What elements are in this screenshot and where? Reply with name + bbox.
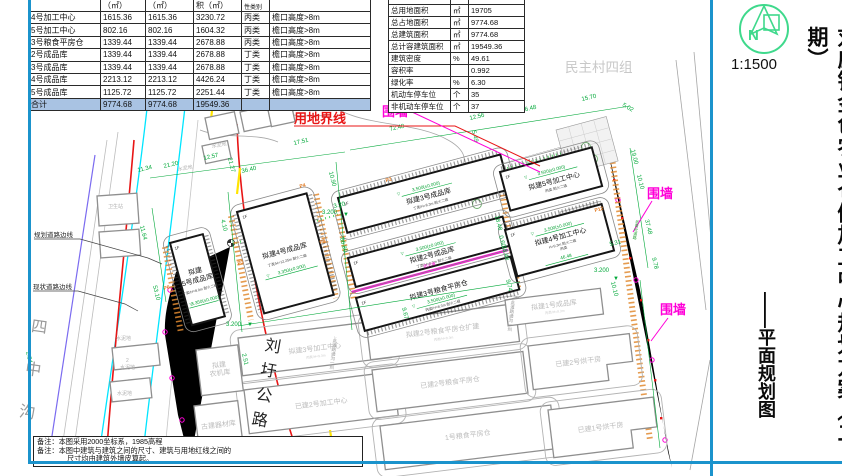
table-header-cell: （㎡）	[101, 0, 146, 12]
table-cell: 檐口高度>8m	[270, 86, 371, 98]
road-edge-line	[72, 132, 118, 462]
table-cell: 总建筑面积	[389, 29, 451, 41]
table-cell: 1339.44	[146, 36, 194, 48]
table-cell: 丁类	[242, 49, 270, 61]
table-cell: ㎡	[451, 17, 469, 29]
table-header-cell	[270, 0, 371, 12]
table-cell	[270, 98, 371, 110]
dim-chain-line	[630, 148, 648, 268]
table-cell: 丁类	[242, 61, 270, 73]
table-cell: 3230.72	[194, 12, 242, 24]
table-cell: 总用地面积	[389, 5, 451, 17]
table-cell: 个	[451, 89, 469, 101]
north-compass-icon: N	[735, 2, 795, 58]
table-row: 总占地面积㎡9774.68	[389, 17, 525, 29]
table-cell: 总计容建筑面积	[389, 41, 451, 53]
fence-label: 围墙	[660, 302, 686, 317]
table-cell: 1604.32	[194, 24, 242, 36]
east-road-line	[676, 60, 706, 310]
dimension-label: 37.48	[643, 219, 653, 236]
table-cell: 37	[469, 101, 525, 113]
dimension-label: 21.27	[226, 157, 236, 174]
dimension-label: 72.48	[389, 124, 406, 133]
cement-label: 水泥地	[177, 163, 193, 173]
leader-line	[651, 318, 668, 341]
table-cell: 总占地面积	[389, 17, 451, 29]
land-boundary-label: 用地界线	[293, 111, 346, 126]
table-cell: 1339.44	[101, 61, 146, 73]
dimension-label: 19.00	[629, 149, 639, 166]
table-cell: ㎡	[451, 29, 469, 41]
table-cell: 802.16	[146, 24, 194, 36]
table-cell	[451, 65, 469, 77]
dimension-label: 60.80	[338, 237, 348, 254]
frame-bottom	[28, 461, 842, 464]
parking-label: P3	[237, 259, 245, 266]
entry-arrow-icon: ▼	[247, 322, 253, 328]
purple-road-line	[48, 155, 95, 462]
table-cell: 机动车停车位	[389, 89, 451, 101]
table-cell: 2213.12	[101, 73, 146, 85]
parking-label: P6	[163, 284, 171, 291]
table-cell: 4号加工中心	[29, 12, 101, 24]
building-area-table: （㎡） （㎡） 积（㎡） 性类别 4号加工中心1615.361615.36323…	[28, 0, 371, 111]
dimension-label: 10.90	[327, 171, 337, 188]
table-row: 建筑密度%49.61	[389, 53, 525, 65]
leader-line	[34, 239, 162, 264]
table-cell: 容积率	[389, 65, 451, 77]
table-cell: 0.992	[469, 65, 525, 77]
table-row: 总建筑面积㎡9774.68	[389, 29, 525, 41]
table-cell: ㎡	[451, 5, 469, 17]
table-cell: 1339.44	[146, 61, 194, 73]
table-cell: 檐口高度>8m	[270, 12, 371, 24]
table-cell: 1125.72	[146, 86, 194, 98]
table-header-cell: （㎡）	[146, 0, 194, 12]
table-row: 总用地面积㎡19705	[389, 5, 525, 17]
table-cell: 19549.36	[194, 98, 242, 110]
table-cell: 802.16	[101, 24, 146, 36]
table-cell: 2678.88	[194, 61, 242, 73]
table-cell: 4号成品库	[29, 73, 101, 85]
table-cell: 非机动车停车位	[389, 101, 451, 113]
existing-shed	[99, 229, 141, 258]
table-cell: 丙类	[242, 36, 270, 48]
dimension-label: 10.10	[635, 174, 645, 191]
table-cell: 9774.68	[101, 98, 146, 110]
table-header-cell: 性类别	[242, 0, 270, 12]
cement-label: 水泥地	[117, 390, 132, 397]
table-row: 机动车停车位个35	[389, 89, 525, 101]
building-cp1: 拟建1号成品库 丙类/H=8.3m	[505, 288, 603, 326]
table-cell: 丁类	[242, 73, 270, 85]
table-cell	[242, 98, 270, 110]
table-row: 总计容建筑面积㎡19549.36	[389, 41, 525, 53]
dimension-label: 53.10	[151, 285, 161, 302]
dimension-label: 36.40	[241, 166, 258, 175]
dimension-label: 17.51	[293, 138, 310, 147]
table-cell: %	[451, 53, 469, 65]
entry-elevation-label: 3.200	[226, 322, 242, 328]
table-cell: 9774.68	[469, 29, 525, 41]
cement-label: 水泥地	[116, 335, 131, 342]
building-hg2: 已建2号烘干房	[519, 325, 643, 399]
table-cell: 1339.44	[101, 49, 146, 61]
east-road-line	[690, 360, 710, 470]
indicator-table: 总用地面积㎡19705总占地面积㎡9774.68总建筑面积㎡9774.68总计容…	[388, 0, 525, 113]
cement-label: 水泥地	[120, 364, 135, 371]
dimension-label: 15.70	[581, 94, 598, 103]
entry-elevation-label: 3.200	[594, 268, 610, 274]
table-cell: 合计	[29, 98, 101, 110]
building-hg1: 已建1号烘干房	[539, 388, 668, 466]
table-cell: 9774.68	[469, 17, 525, 29]
table-cell: 6.30	[469, 77, 525, 89]
road-edge-line	[60, 140, 107, 462]
table-cell: 丙类	[242, 12, 270, 24]
dimension-label: 10.10	[609, 281, 619, 298]
table-header-cell	[29, 0, 101, 12]
table-cell: 2号成品库	[29, 49, 101, 61]
table-cell: 檐口高度>8m	[270, 49, 371, 61]
table-cell: 2678.88	[194, 49, 242, 61]
table-row: 容积率0.992	[389, 65, 525, 77]
dimension-label: 12.56	[469, 113, 486, 122]
table-row: 5号成品库1125.721125.722251.44丁类檐口高度>8m	[29, 86, 371, 98]
dimension-label: 4.10	[219, 219, 228, 232]
table-cell: 3号粮食平房仓	[29, 36, 101, 48]
table-cell: %	[451, 77, 469, 89]
table-cell: 19549.36	[469, 41, 525, 53]
table-row: 3号粮食平房仓1339.441339.442678.88丙类檐口高度>8m	[29, 36, 371, 48]
table-row: 绿化率%6.30	[389, 77, 525, 89]
existing-road-edge-label: 现状道路边线	[33, 282, 73, 291]
table-cell: 2251.44	[194, 86, 242, 98]
table-cell: 1339.44	[146, 49, 194, 61]
entry-arrow-icon: ▼	[613, 276, 619, 282]
drawing-subtitle: ——平面规划图	[753, 292, 779, 418]
dimension-label: 5.02	[621, 103, 635, 114]
table-cell: 檐口高度>8m	[270, 36, 371, 48]
table-cell: 1339.44	[101, 36, 146, 48]
table-cell: 绿化率	[389, 77, 451, 89]
table-cell: 建筑密度	[389, 53, 451, 65]
table-cell: 丙类	[242, 24, 270, 36]
frame-left	[28, 0, 31, 463]
table-row: 5号加工中心802.16802.161604.32丙类檐口高度>8m	[29, 24, 371, 36]
table-cell: 3号成品库	[29, 61, 101, 73]
table-row: 3号成品库1339.441339.442678.88丁类檐口高度>8m	[29, 61, 371, 73]
table-header-row: （㎡） （㎡） 积（㎡） 性类别	[29, 0, 371, 12]
table-cell: 35	[469, 89, 525, 101]
scale-label: 1:1500	[719, 56, 789, 73]
table-cell: 檐口高度>8m	[270, 73, 371, 85]
table-row: 4号加工中心1615.361615.363230.72丙类檐口高度>8m	[29, 12, 371, 24]
clinic-label: 卫生站	[108, 203, 123, 210]
table-row: 4号成品库2213.122213.124426.24丁类檐口高度>8m	[29, 73, 371, 85]
leader-line	[294, 126, 540, 166]
table-row: 非机动车停车位个37	[389, 101, 525, 113]
title-panel: N 1:1500 刘庄镇金色农业仓储加工中心规划方案（二期） ——平面规划图	[710, 0, 842, 476]
dimension-label: 9.78	[650, 257, 659, 270]
table-cell: 2678.88	[194, 36, 242, 48]
table-cell: 1125.72	[101, 86, 146, 98]
parking-label: P4	[299, 182, 307, 189]
table-cell: 个	[451, 101, 469, 113]
table-cell: 1615.36	[101, 12, 146, 24]
drawing-title: 刘庄镇金色农业仓储加工中心规划方案（二期）	[801, 26, 842, 476]
table-header-cell: 积（㎡）	[194, 0, 242, 12]
shed-number: 2	[126, 358, 129, 364]
entry-elevation-label: 3.200	[322, 210, 338, 216]
table-cell: ㎡	[451, 41, 469, 53]
table-cell: 檐口高度>8m	[270, 61, 371, 73]
building-njk: 拟建 农机库	[196, 345, 243, 396]
existing-shed	[110, 378, 152, 402]
village-label: 民主村四组	[565, 60, 633, 75]
table-cell: 4426.24	[194, 73, 242, 85]
cyan-road-line	[98, 100, 148, 462]
fence-label: 围墙	[647, 186, 673, 201]
table-cell: 5号加工中心	[29, 24, 101, 36]
building-cp4: 1F 拟建4号成品库 丁类/H=12.25m 耐火二级 ▽ 3.350(±0.0…	[228, 185, 342, 322]
table-cell: 49.61	[469, 53, 525, 65]
north-letter: N	[748, 27, 759, 44]
fence-road-label: 沥青砼道路	[632, 218, 640, 241]
table-cell: 1615.36	[146, 12, 194, 24]
table-row: 合计9774.689774.6819549.36	[29, 98, 371, 110]
table-cell: 2213.12	[146, 73, 194, 85]
parking-label: P9	[319, 238, 327, 245]
planned-road-edge-label: 规划道路边线	[34, 230, 74, 239]
entry-arrow-icon: ▼	[343, 212, 349, 218]
table-cell: 5号成品库	[29, 86, 101, 98]
table-cell: 9774.68	[146, 98, 194, 110]
table-cell: 丁类	[242, 86, 270, 98]
table-cell: 檐口高度>8m	[270, 24, 371, 36]
table-row: 2号成品库1339.441339.442678.88丁类檐口高度>8m	[29, 49, 371, 61]
table-cell: 19705	[469, 5, 525, 17]
